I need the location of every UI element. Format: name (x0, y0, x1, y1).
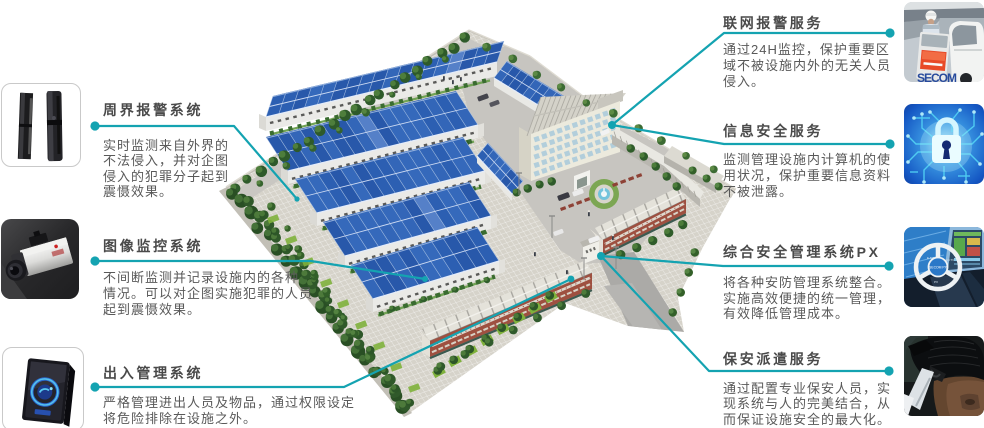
svg-text:CCTV: CCTV (946, 258, 954, 262)
svg-text:E-MAP: E-MAP (927, 256, 937, 260)
svg-text:PX: PX (934, 280, 938, 284)
svg-text:SECOM PX: SECOM PX (929, 266, 948, 270)
svg-text:SECOM: SECOM (917, 71, 957, 82)
